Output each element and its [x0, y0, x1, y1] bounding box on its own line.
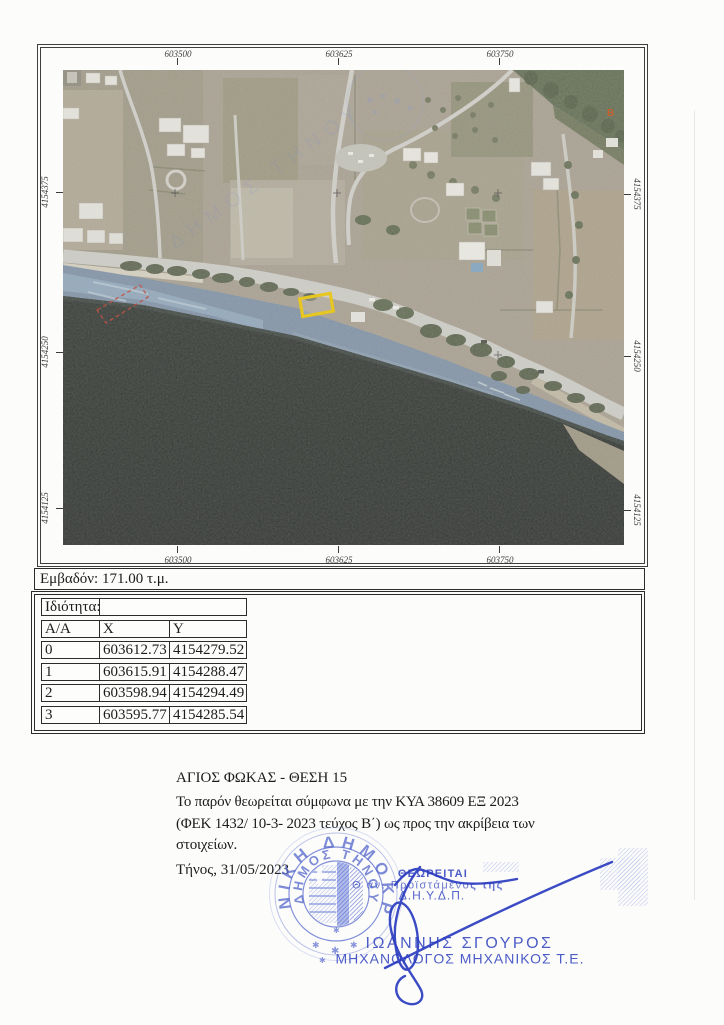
svg-text:ΜΗΧΑΝΟΛΟΓΟΣ ΜΗΧΑΝΙΚΟΣ Τ.Ε.: ΜΗΧΑΝΟΛΟΓΟΣ ΜΗΧΑΝΙΚΟΣ Τ.Ε. — [336, 951, 585, 967]
svg-text:✱: ✱ — [312, 940, 320, 950]
svg-text:Δ.Η.Υ.Δ.Π.: Δ.Η.Υ.Δ.Π. — [399, 889, 466, 903]
svg-text:✱: ✱ — [319, 956, 326, 965]
svg-text:✱: ✱ — [350, 940, 358, 950]
svg-text:B: B — [607, 108, 614, 119]
svg-text:✱: ✱ — [333, 926, 340, 935]
